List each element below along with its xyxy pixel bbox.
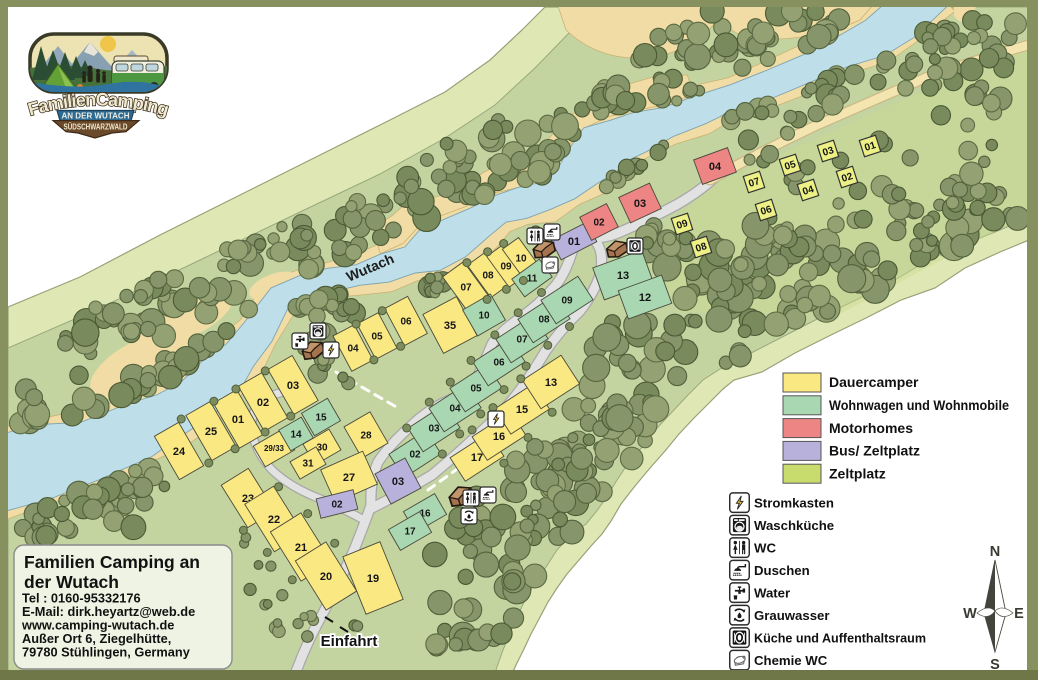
svg-text:02: 02 <box>331 500 343 511</box>
svg-text:14: 14 <box>290 430 302 441</box>
svg-text:SÜDSCHWARZWALD: SÜDSCHWARZWALD <box>64 123 128 132</box>
svg-text:20: 20 <box>320 571 332 583</box>
svg-text:21: 21 <box>295 542 307 554</box>
svg-text:AN DER WUTACH: AN DER WUTACH <box>62 110 130 120</box>
svg-text:02: 02 <box>593 218 605 229</box>
svg-text:W: W <box>963 606 977 622</box>
svg-text:Zeltplatz: Zeltplatz <box>829 465 886 481</box>
svg-text:03: 03 <box>428 424 440 435</box>
svg-text:Waschküche: Waschküche <box>754 518 834 533</box>
svg-text:35: 35 <box>444 320 456 332</box>
svg-text:16: 16 <box>493 431 505 443</box>
svg-text:09: 09 <box>561 296 573 307</box>
svg-text:31: 31 <box>302 459 314 470</box>
svg-text:N: N <box>990 544 1000 560</box>
svg-text:12: 12 <box>639 292 651 304</box>
svg-text:29/33: 29/33 <box>264 444 285 453</box>
svg-text:04: 04 <box>709 161 722 173</box>
svg-text:19: 19 <box>367 573 379 585</box>
svg-text:11: 11 <box>527 274 538 285</box>
svg-text:08: 08 <box>538 315 550 326</box>
svg-text:04: 04 <box>347 344 359 355</box>
svg-text:03: 03 <box>392 476 404 488</box>
svg-text:17: 17 <box>471 452 483 464</box>
svg-text:07: 07 <box>460 283 472 294</box>
svg-text:13: 13 <box>545 377 557 389</box>
svg-text:01: 01 <box>568 236 580 248</box>
svg-text:09: 09 <box>500 262 512 273</box>
svg-text:01: 01 <box>232 414 244 426</box>
svg-text:Water: Water <box>754 585 790 600</box>
svg-text:15: 15 <box>315 413 327 424</box>
svg-text:WC: WC <box>754 540 776 555</box>
svg-text:Dauercamper: Dauercamper <box>829 374 919 390</box>
svg-text:Duschen: Duschen <box>754 563 810 578</box>
svg-text:27: 27 <box>343 472 355 484</box>
svg-text:Einfahrt: Einfahrt <box>321 633 378 650</box>
svg-text:06: 06 <box>400 317 412 328</box>
svg-text:15: 15 <box>516 404 528 416</box>
svg-text:28: 28 <box>360 431 372 442</box>
svg-text:Chemie WC: Chemie WC <box>754 653 828 668</box>
svg-text:25: 25 <box>205 426 217 438</box>
svg-text:Stromkasten: Stromkasten <box>754 495 834 510</box>
svg-text:22: 22 <box>268 514 280 526</box>
svg-text:Wohnwagen und Wohnmobile: Wohnwagen und Wohnmobile <box>829 397 1009 413</box>
svg-text:07: 07 <box>516 335 528 346</box>
svg-text:der Wutach: der Wutach <box>24 572 119 592</box>
svg-text:06: 06 <box>493 358 505 369</box>
svg-text:17: 17 <box>404 527 416 538</box>
svg-text:08: 08 <box>482 271 494 282</box>
svg-text:10: 10 <box>478 311 490 322</box>
svg-text:E: E <box>1014 606 1024 622</box>
svg-text:02: 02 <box>409 450 421 461</box>
svg-text:05: 05 <box>470 384 482 395</box>
svg-text:10: 10 <box>515 254 527 265</box>
svg-text:05: 05 <box>371 332 383 343</box>
svg-text:Motorhomes: Motorhomes <box>829 420 913 436</box>
svg-text:Bus/ Zeltplatz: Bus/ Zeltplatz <box>829 443 920 459</box>
svg-text:Familien Camping an: Familien Camping an <box>24 552 200 572</box>
svg-text:03: 03 <box>287 380 299 392</box>
svg-text:03: 03 <box>634 198 646 210</box>
svg-text:04: 04 <box>449 404 461 415</box>
svg-text:Grauwasser: Grauwasser <box>754 608 830 623</box>
svg-text:Küche und Auffenthaltsraum: Küche und Auffenthaltsraum <box>754 630 926 645</box>
svg-text:24: 24 <box>173 446 186 458</box>
svg-text:02: 02 <box>257 397 269 409</box>
svg-text:13: 13 <box>617 270 629 282</box>
svg-text:79780 Stühlingen, Germany: 79780 Stühlingen, Germany <box>22 645 191 660</box>
